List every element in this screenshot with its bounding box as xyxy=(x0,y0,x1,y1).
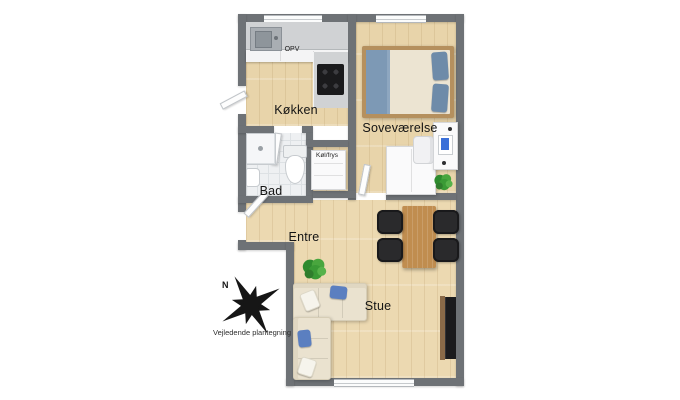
livingroom-plant xyxy=(301,256,328,283)
kitchen-sink xyxy=(250,27,282,51)
kitchen-back-door xyxy=(220,90,248,109)
wall-kitchen-bath-b xyxy=(302,126,313,133)
room-label-kitchen: Køkken xyxy=(274,103,318,117)
dining-chair-1 xyxy=(377,210,403,234)
dining-table xyxy=(402,206,436,268)
room-label-livingroom: Stue xyxy=(365,299,392,313)
bed-pillow-1 xyxy=(431,51,449,80)
faucet-icon xyxy=(274,36,278,40)
bedroom-window xyxy=(376,15,426,23)
cooktop xyxy=(317,64,344,95)
bathroom-sink xyxy=(246,168,260,187)
sofa-pillow-blue-2 xyxy=(297,329,312,347)
dishwasher-label: OPV xyxy=(285,46,300,53)
wall-kitchen-bedroom-divider xyxy=(348,14,356,200)
bed-throw xyxy=(366,50,390,114)
wall-kitchen-bath-a xyxy=(238,126,274,133)
sofa-pillow-blue-1 xyxy=(329,285,347,300)
dining-chair-3 xyxy=(433,210,459,234)
compass-north-label: N xyxy=(222,280,229,290)
laptop-icon xyxy=(438,135,453,155)
wall-right xyxy=(456,14,464,386)
dining-chair-4 xyxy=(433,238,459,262)
fridge-label: Køl/frys xyxy=(316,152,338,159)
livingroom-window xyxy=(334,379,414,387)
wall-niche-bottom xyxy=(313,191,356,198)
dining-chair-2 xyxy=(377,238,403,262)
double-bed xyxy=(362,46,454,118)
room-label-bedroom: Soveværelse xyxy=(362,121,437,135)
desk-chair xyxy=(413,136,434,164)
shower xyxy=(246,133,276,165)
bedroom-plant xyxy=(433,172,454,193)
floorplan-canvas: OPV Køl/frys xyxy=(0,0,680,400)
disclaimer-text: Vejledende plantegning xyxy=(213,328,291,337)
wall-niche-top xyxy=(306,140,348,147)
room-label-entrance: Entre xyxy=(289,230,320,244)
shower-drain-icon xyxy=(258,146,263,151)
tv xyxy=(445,297,456,359)
bed-pillow-2 xyxy=(431,83,449,112)
wall-left-1 xyxy=(238,14,246,86)
room-label-bathroom: Bad xyxy=(260,184,283,198)
